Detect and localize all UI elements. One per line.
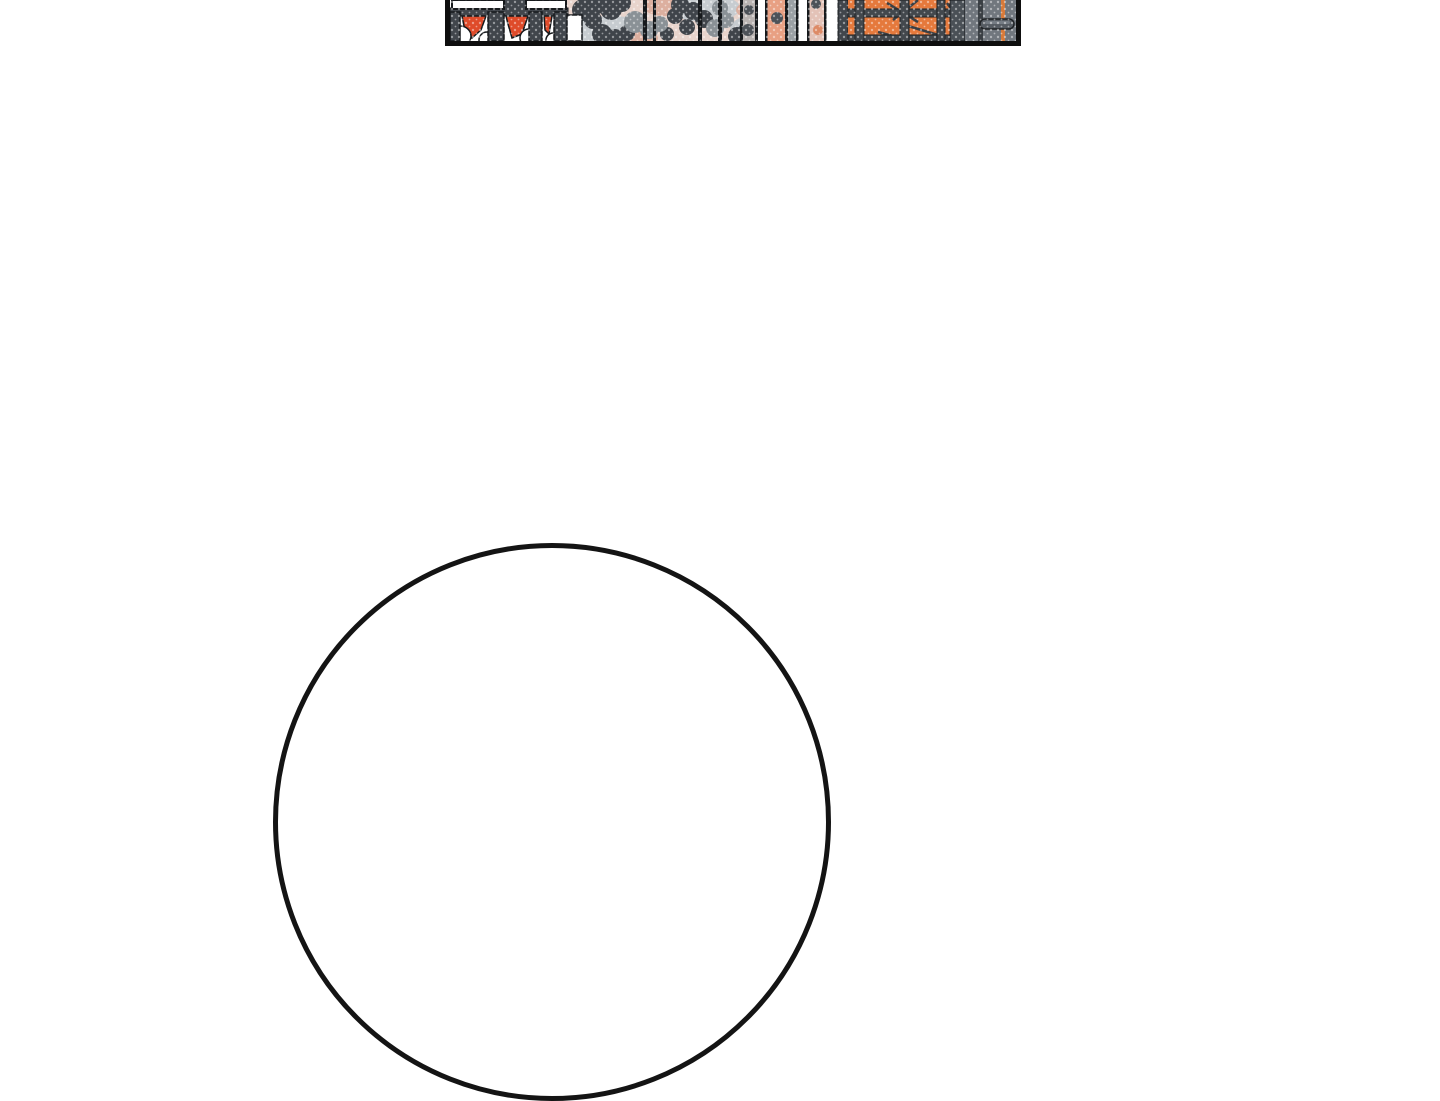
page-background xyxy=(0,0,1440,625)
comic-strip xyxy=(445,0,1021,625)
comic-panel-bottom-edge xyxy=(445,0,1021,46)
halftone-dots-overlay xyxy=(450,0,1016,41)
comic-panel-art xyxy=(450,0,1016,41)
speech-bubble-arc xyxy=(273,543,831,1101)
